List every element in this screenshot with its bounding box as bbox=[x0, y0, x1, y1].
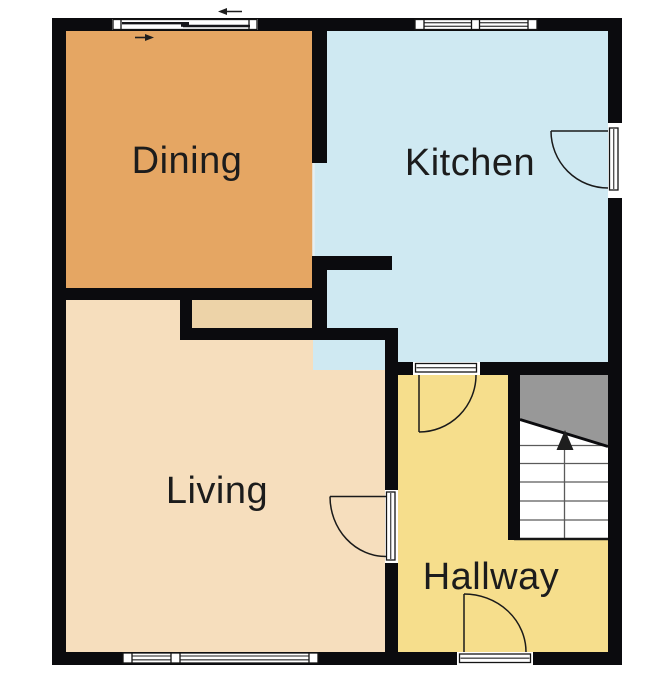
wall-living-top bbox=[180, 328, 398, 340]
sliding-door-overlap bbox=[181, 22, 189, 26]
wall-kitchen-stub bbox=[312, 256, 392, 270]
sliding-door-post bbox=[249, 20, 257, 30]
window-post bbox=[123, 653, 132, 663]
wall-right bbox=[608, 18, 622, 665]
living-room-label: Living bbox=[166, 470, 268, 512]
wall-stairs-left bbox=[508, 362, 520, 540]
window-frame bbox=[123, 653, 318, 663]
window-post bbox=[528, 20, 537, 30]
wall-left bbox=[52, 18, 66, 665]
kitchen-window bbox=[415, 20, 537, 30]
window-post bbox=[415, 20, 424, 30]
window-mullion bbox=[171, 653, 180, 663]
staircase bbox=[514, 368, 608, 540]
hallway-label: Hallway bbox=[423, 556, 560, 598]
living-window bbox=[123, 653, 318, 663]
floorplan-canvas: Dining Kitchen Living Hallway bbox=[0, 0, 669, 677]
dining-room-label: Dining bbox=[132, 140, 243, 182]
sliding-door-post bbox=[113, 20, 121, 30]
wall-dining-living bbox=[66, 288, 327, 300]
kitchen-label: Kitchen bbox=[405, 142, 535, 184]
wall-dining-kitchen bbox=[312, 31, 327, 163]
window-post bbox=[309, 653, 318, 663]
slide-left-arrowhead-icon bbox=[218, 8, 227, 15]
window-mullion bbox=[472, 20, 480, 30]
floorplan: Dining Kitchen Living Hallway bbox=[0, 0, 669, 677]
